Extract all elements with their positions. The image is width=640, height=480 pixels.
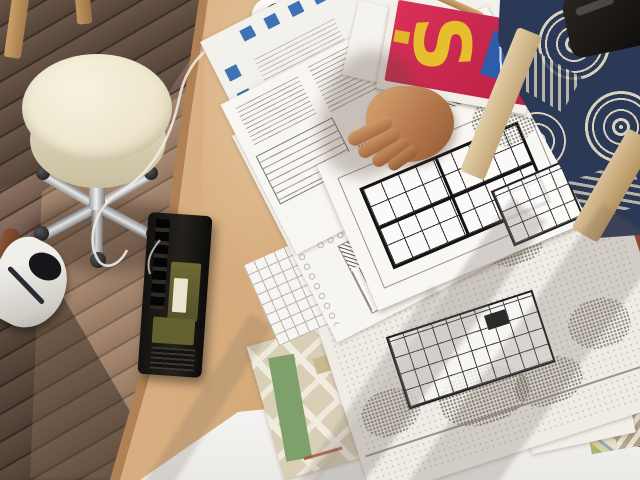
radio-panel	[152, 317, 196, 346]
wood-chair-leg	[75, 0, 93, 25]
radio-keys	[150, 219, 170, 310]
photo-canvas: S	[0, 0, 640, 480]
radio	[137, 212, 212, 378]
bag-highlight	[574, 0, 614, 17]
stool-caster	[90, 252, 106, 268]
radio-label	[172, 278, 188, 313]
map-green-strip	[268, 354, 312, 462]
building-core	[484, 309, 510, 330]
stool-seat	[22, 54, 172, 162]
radio-vents	[150, 346, 195, 371]
